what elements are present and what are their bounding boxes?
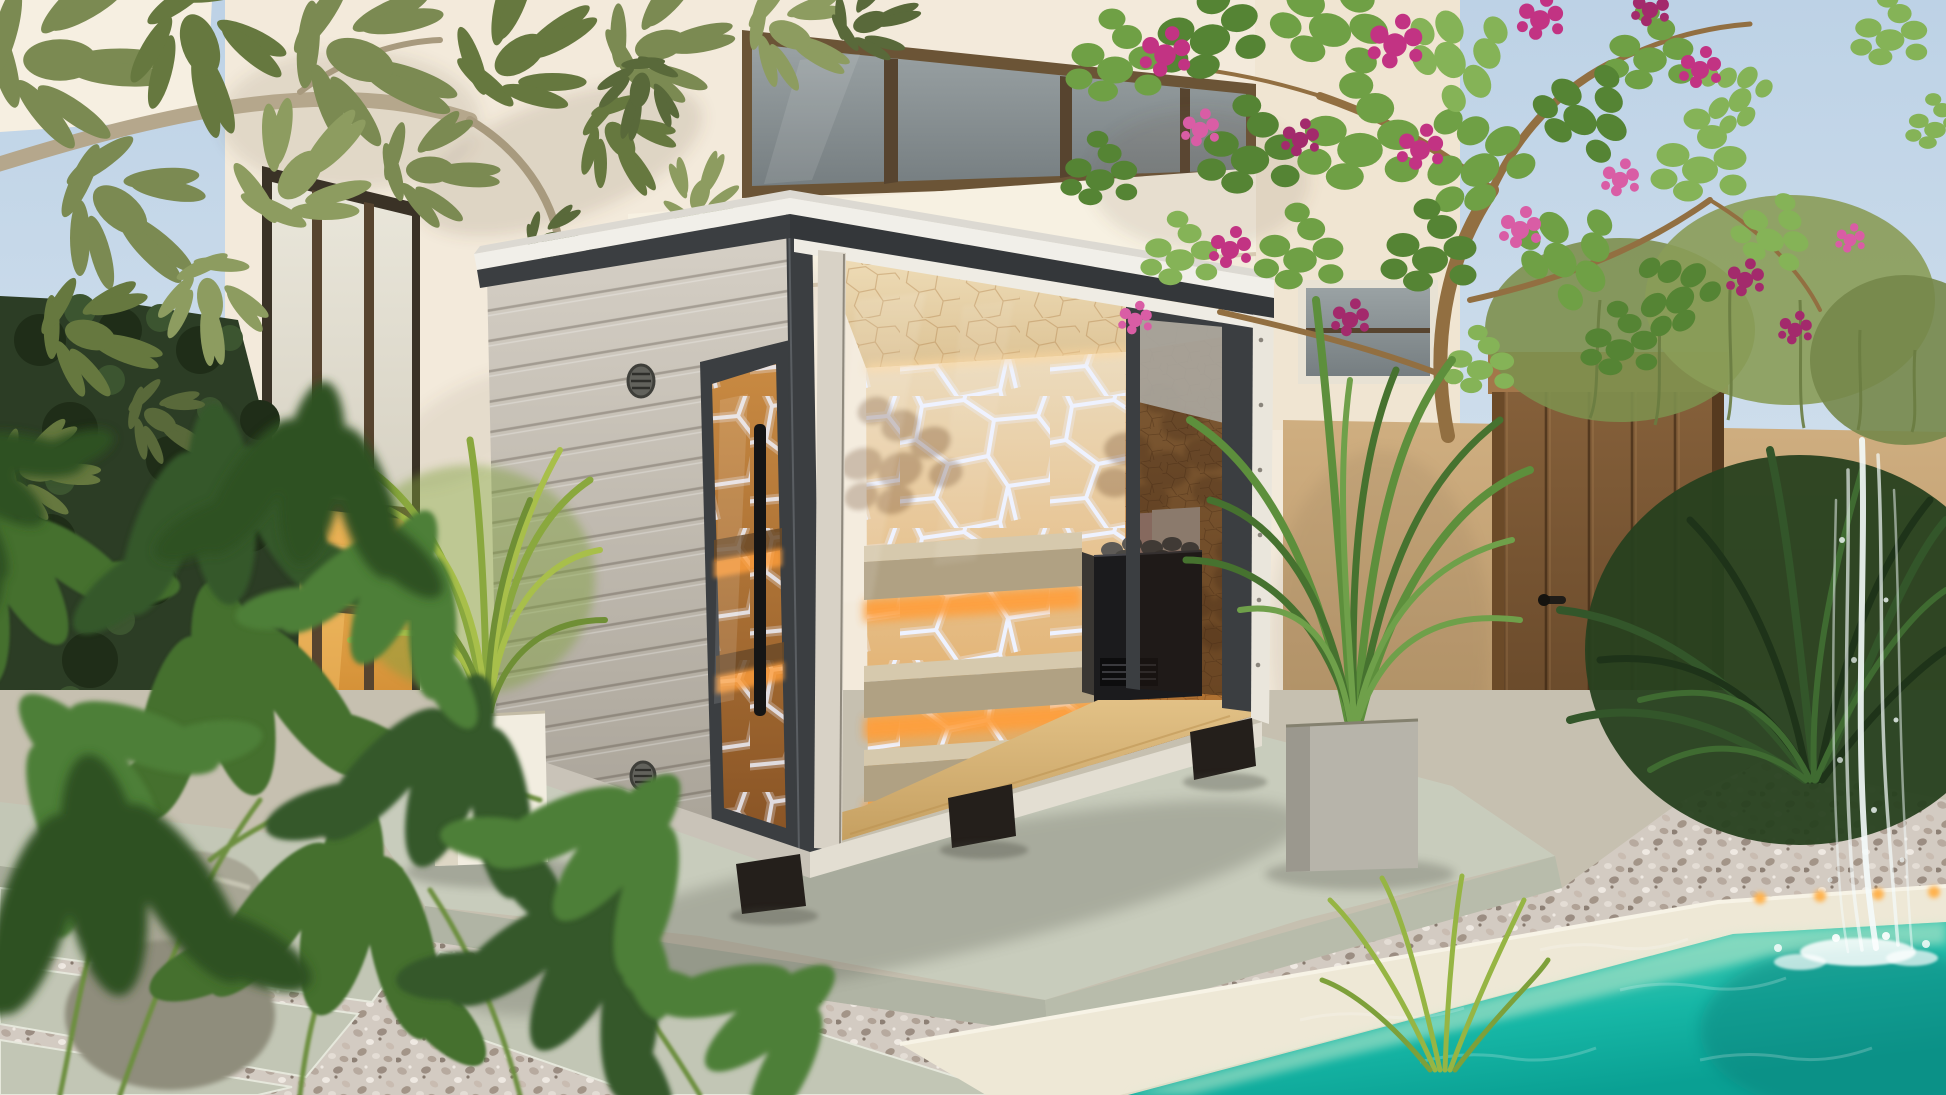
scene-canvas	[0, 0, 1946, 1095]
sauna-vent-upper	[628, 365, 654, 397]
sauna-side-door-glass	[712, 364, 786, 828]
sauna-door-handle	[754, 424, 766, 716]
rendered-photo	[0, 0, 1946, 1095]
grey-planter-shade	[1286, 725, 1310, 872]
